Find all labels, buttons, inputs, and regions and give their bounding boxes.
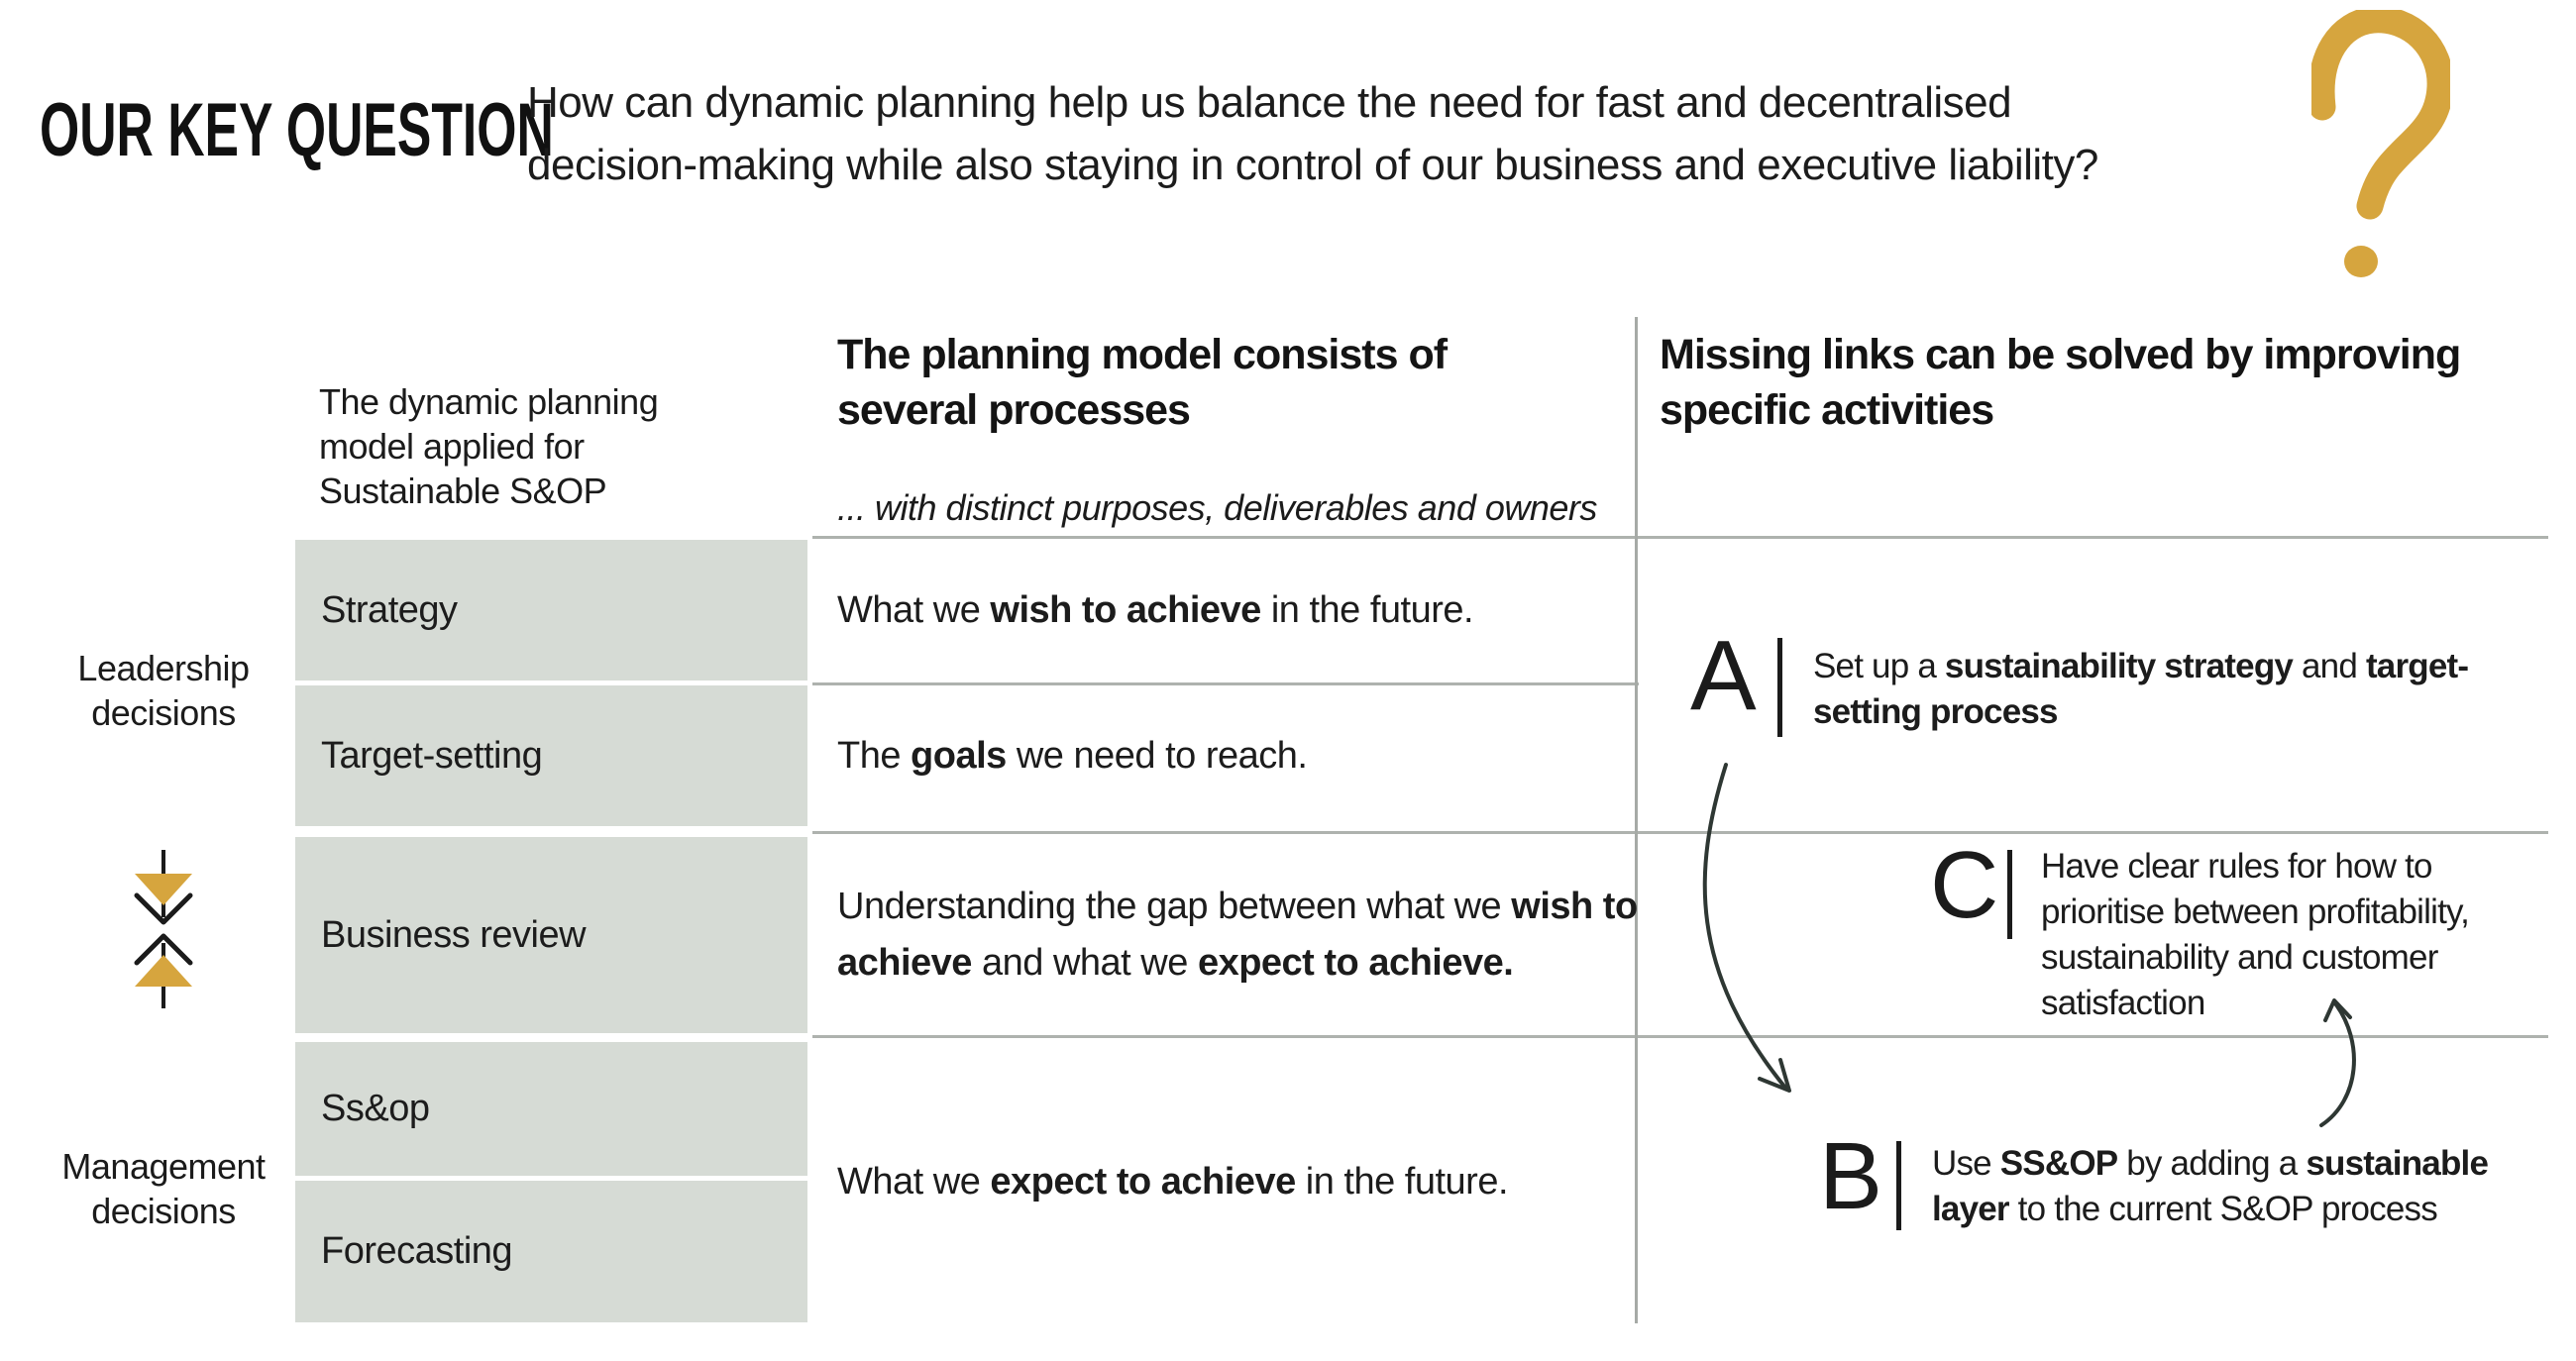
missing-links-column-title: Missing links can be solved by improving… [1660,327,2460,438]
curved-arrow-a-to-b-icon [1705,765,1789,1091]
row-label-forecasting: Forecasting [321,1230,512,1273]
question-mark-icon [2311,10,2450,289]
process-column-subtitle: ... with distinct purposes, deliverables… [837,487,1597,529]
row-strategy: Strategy [295,540,807,680]
activity-c-bar [2007,850,2012,939]
row-label-strategy: Strategy [321,589,458,632]
row-rule-2 [812,831,2548,834]
corner-header-line-3: Sustainable S&OP [319,469,658,513]
page-title: OUR KEY QUESTION [40,87,554,173]
process-title-line-2: several processes [837,382,1447,438]
desc-strategy: What we wish to achieve in the future. [837,540,1630,680]
row-label-ssop: Ss&op [321,1088,429,1130]
row-forecasting: Forecasting [295,1181,807,1322]
row-label-business-review: Business review [321,914,586,957]
activity-a-letter: A [1690,626,1756,725]
process-title-line-1: The planning model consists of [837,327,1447,382]
key-question-text: How can dynamic planning help us balance… [527,71,2098,196]
row-label-target-setting: Target-setting [321,735,542,778]
activity-c-text: Have clear rules for how toprioritise be… [2041,844,2469,1026]
activity-a-text: Set up a sustainability strategy and tar… [1813,644,2468,735]
group-label-management: Management decisions [35,1144,292,1233]
corner-header-line-1: The dynamic planning [319,379,658,424]
corner-header: The dynamic planning model applied for S… [319,379,658,513]
bidirectional-arrows-icon [113,848,214,1012]
corner-header-line-2: model applied for [319,424,658,469]
column-divider [1635,317,1638,1323]
missing-links-title-line-2: specific activities [1660,382,2460,438]
header-rule [812,536,2548,539]
desc-business-review: Understanding the gap between what we wi… [837,837,1630,1033]
missing-links-title-line-1: Missing links can be solved by improving [1660,327,2460,382]
row-rule-3 [812,1035,2548,1038]
row-ssop: Ss&op [295,1042,807,1176]
activity-b-letter: B [1819,1129,1882,1224]
key-question-line-1: How can dynamic planning help us balance… [527,71,2098,134]
slide: OUR KEY QUESTION How can dynamic plannin… [0,0,2576,1361]
row-business-review: Business review [295,837,807,1033]
desc-target-setting: The goals we need to reach. [837,685,1630,826]
activity-c-letter: C [1930,838,1998,933]
key-question-line-2: decision-making while also staying in co… [527,134,2098,196]
desc-ssop-forecasting: What we expect to achieve in the future. [837,1042,1630,1322]
row-target-setting: Target-setting [295,685,807,826]
group-label-leadership: Leadership decisions [35,646,292,735]
process-column-title: The planning model consists of several p… [837,327,1447,438]
activity-a-bar [1777,638,1782,737]
activity-b-text: Use SS&OP by adding a sustainablelayer t… [1932,1141,2488,1232]
activity-b-bar [1896,1141,1901,1230]
